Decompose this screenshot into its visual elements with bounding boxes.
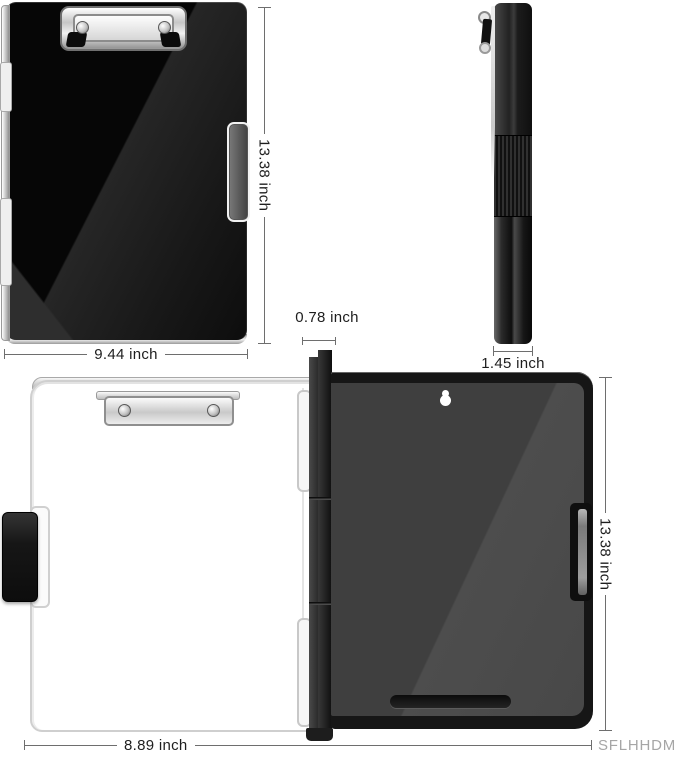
- product-dimension-diagram: 13.38 inch 9.44 inch 1.45 inch 0.78 inch: [0, 0, 679, 758]
- spine-hinge-joint-upper: [309, 497, 332, 500]
- dimension-tick: [258, 343, 271, 344]
- open-back-panel: [331, 372, 593, 729]
- closed-height-dimension: 13.38 inch: [257, 7, 271, 344]
- dimension-line: [165, 354, 247, 355]
- dimension-line: [605, 595, 606, 730]
- open-left-latch: [2, 512, 38, 602]
- side-view-upper-section: [494, 3, 532, 136]
- dimension-line: [25, 745, 117, 746]
- open-front-panel: [30, 380, 314, 732]
- open-clipboard-clip: [104, 396, 234, 426]
- dimension-line: [264, 217, 265, 343]
- open-height-label: 13.38 inch: [597, 513, 614, 595]
- back-panel-handle-slot: [390, 695, 511, 708]
- closed-clipboard-clip: [60, 6, 187, 51]
- closed-hinge-tab-bottom: [0, 198, 12, 286]
- closed-side-latch: [227, 122, 250, 222]
- dimension-line: [605, 378, 606, 513]
- dimension-line: [264, 8, 265, 134]
- closed-clipboard-board: [6, 2, 247, 340]
- dimension-tick: [591, 740, 592, 750]
- spine-back-half: [318, 350, 332, 735]
- closed-height-label: 13.38 inch: [256, 134, 273, 216]
- dimension-line: [195, 745, 591, 746]
- open-back-panel-face: [331, 383, 584, 716]
- side-view-clear-edge: [491, 6, 495, 178]
- open-clip-screw-right: [207, 404, 220, 417]
- spine-front-half: [309, 357, 318, 735]
- closed-width-label: 9.44 inch: [87, 346, 165, 363]
- dimension-line: [494, 351, 532, 352]
- dimension-tick: [599, 730, 612, 731]
- open-height-dimension: 13.38 inch: [597, 377, 613, 731]
- closed-hinge-tab-top: [0, 62, 12, 112]
- dimension-tick: [247, 349, 248, 359]
- closed-width-dimension: 9.44 inch: [4, 348, 248, 360]
- clip-pad-right: [160, 32, 182, 47]
- dimension-line: [303, 340, 335, 341]
- keyhole-bulb: [440, 395, 451, 406]
- open-width-label: 8.89 inch: [117, 737, 195, 754]
- closed-board-hinge-rim: [1, 5, 10, 341]
- side-view-ridged-grip: [494, 136, 532, 217]
- clip-screw-right: [158, 21, 171, 34]
- side-clip-rivet: [479, 42, 491, 54]
- spine-hinge-joint-lower: [309, 602, 332, 605]
- side-view-lower-section: [494, 217, 532, 344]
- side-view-bar: [494, 3, 532, 344]
- dimension-tick: [335, 337, 336, 345]
- clip-screw-left: [76, 21, 89, 34]
- dimension-line: [5, 354, 87, 355]
- side-thickness-label: 1.45 inch: [468, 355, 558, 372]
- spine-thickness-dimension: [302, 336, 336, 345]
- watermark-text: SFLHHDM: [598, 737, 676, 754]
- keyhole-hanging-hole-icon: [439, 390, 453, 407]
- open-clip-screw-left: [118, 404, 131, 417]
- open-width-dimension: 8.89 inch: [24, 739, 592, 751]
- clip-pad-left: [66, 32, 88, 47]
- open-right-latch-slider: [578, 509, 587, 595]
- spine-thickness-label: 0.78 inch: [282, 309, 372, 326]
